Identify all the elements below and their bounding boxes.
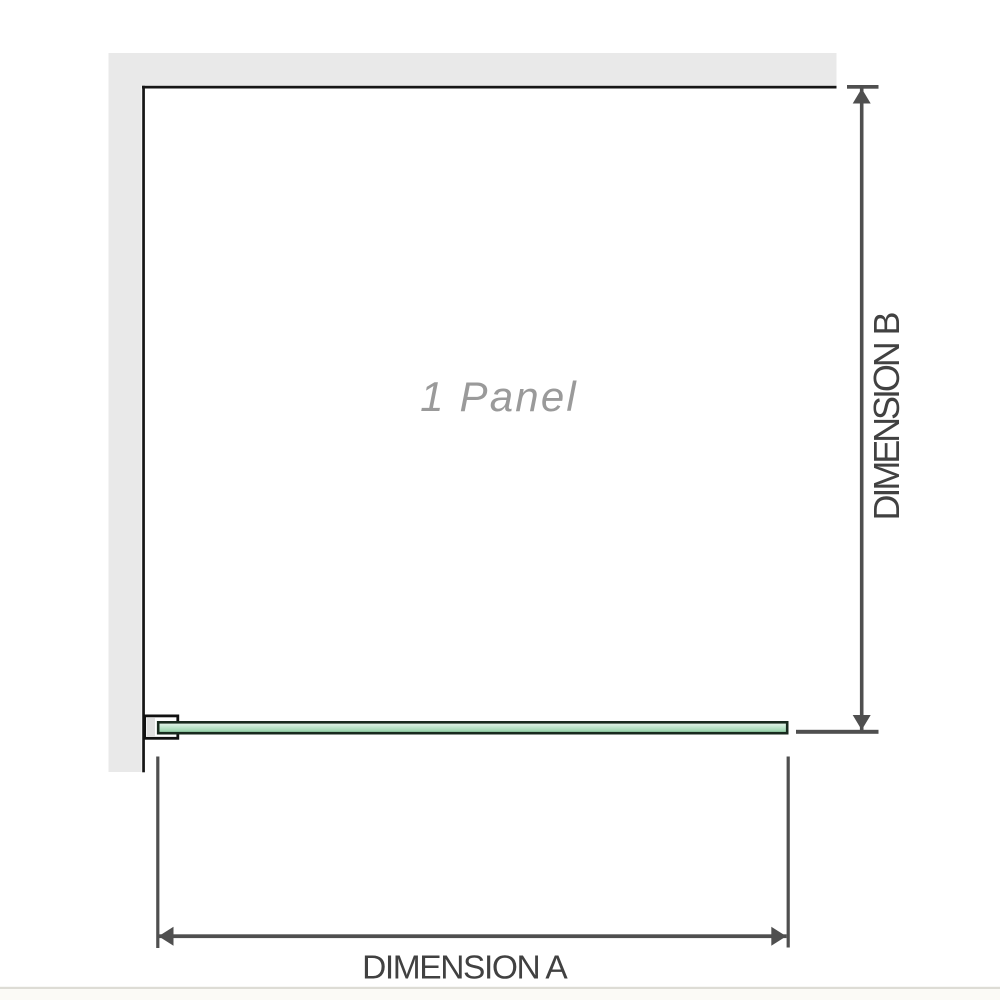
svg-text:DIMENSION A: DIMENSION A xyxy=(362,950,568,987)
svg-text:1 Panel: 1 Panel xyxy=(420,373,578,420)
svg-text:DIMENSION B: DIMENSION B xyxy=(866,312,907,520)
